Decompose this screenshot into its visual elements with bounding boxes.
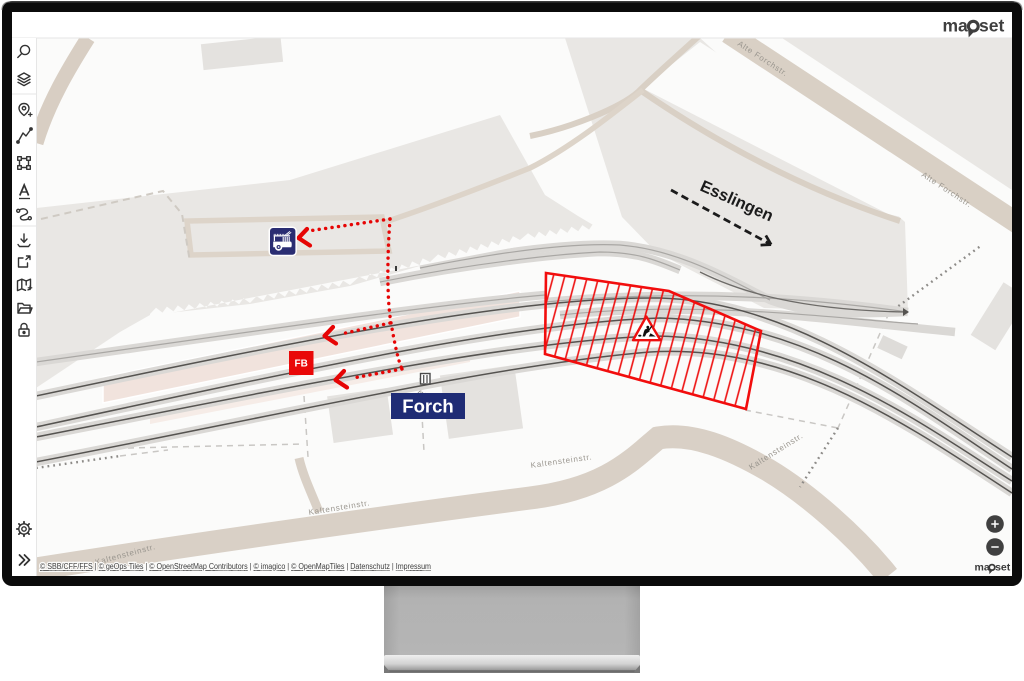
svg-text:Forch: Forch (402, 396, 453, 417)
svg-text:ma: ma (943, 16, 969, 36)
svg-text:ma: ma (975, 562, 990, 574)
svg-text:FB: FB (295, 359, 308, 370)
svg-text:© SBB/CFF/FFS | © geOps Tiles: © SBB/CFF/FFS | © geOps Tiles | © OpenSt… (40, 562, 431, 571)
svg-text:set: set (979, 16, 1004, 36)
svg-text:set: set (995, 562, 1011, 574)
